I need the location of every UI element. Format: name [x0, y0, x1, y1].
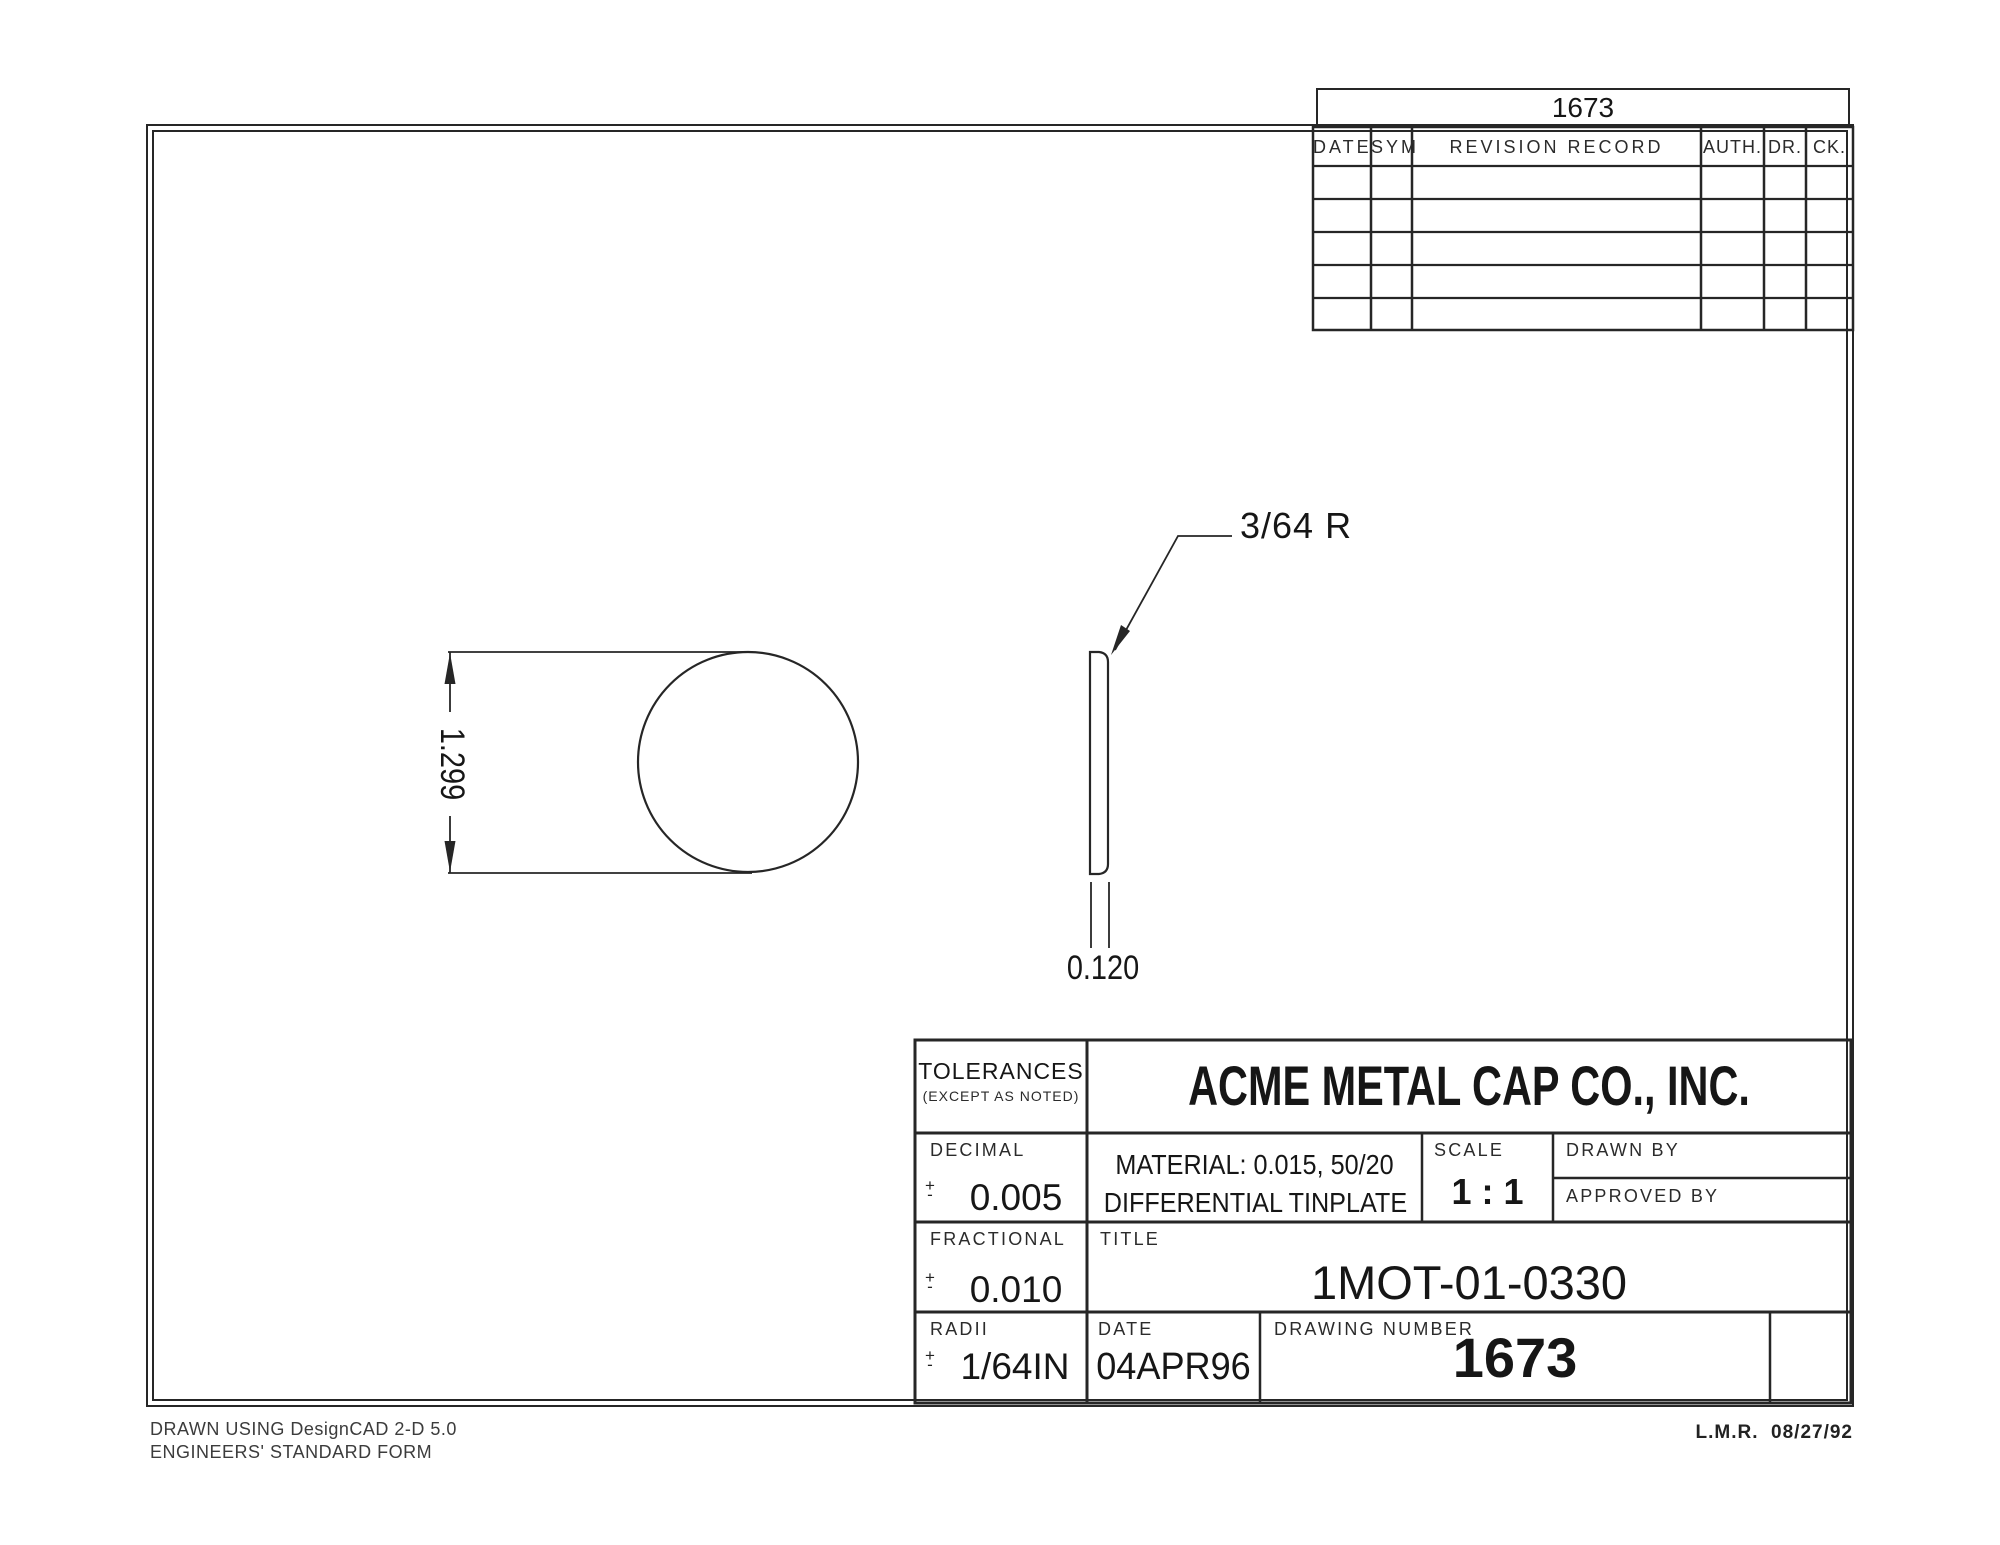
fractional-plus-minus: + - — [925, 1274, 935, 1291]
scale-value: 1 : 1 — [1422, 1174, 1553, 1210]
drawing-sheet: 1673 DATE SYM REVISION RECORD AUTH. DR. … — [0, 0, 2000, 1545]
revision-sheet-number: 1673 — [1317, 94, 1849, 122]
title-label: TITLE — [1100, 1230, 1160, 1248]
drawing-geometry — [0, 0, 2000, 1545]
pm-bottom: - — [927, 1191, 933, 1200]
approved-by-label: APPROVED BY — [1566, 1187, 1719, 1205]
revision-col-header-record: REVISION RECORD — [1412, 138, 1701, 156]
radii-plus-minus: + - — [925, 1352, 935, 1369]
radius-leader-arrow — [1111, 625, 1130, 655]
tolerances-note: (EXCEPT AS NOTED) — [915, 1089, 1087, 1103]
dim-arrow-down — [445, 841, 456, 872]
fractional-label: FRACTIONAL — [930, 1230, 1066, 1248]
radii-value: 1/64IN — [940, 1348, 1090, 1385]
dim-arrow-up — [445, 653, 456, 684]
radius-leader-line — [1115, 536, 1232, 650]
radius-callout-text: 3/64 R — [1240, 508, 1352, 544]
part-front-view-circle — [638, 652, 858, 872]
decimal-plus-minus: + - — [925, 1182, 935, 1199]
date-label: DATE — [1098, 1320, 1153, 1338]
date-value: 04APR96 — [1091, 1348, 1255, 1386]
revision-col-header-ck: CK. — [1806, 138, 1853, 156]
fractional-value: 0.010 — [945, 1271, 1087, 1308]
material-line1: MATERIAL: 0.015, 50/20 — [1104, 1151, 1406, 1179]
revision-col-header-dr: DR. — [1764, 138, 1806, 156]
drawing-number-value: 1673 — [1260, 1330, 1770, 1386]
material-line2: DIFFERENTIAL TINPLATE — [1104, 1189, 1406, 1217]
part-side-view-profile — [1090, 652, 1108, 874]
scale-label: SCALE — [1434, 1141, 1504, 1159]
decimal-label: DECIMAL — [930, 1141, 1025, 1159]
title-value: 1MOT-01-0330 — [1087, 1259, 1851, 1306]
revision-col-header-sym: SYM — [1371, 138, 1412, 156]
pm-bottom: - — [927, 1283, 933, 1292]
revision-table-frame — [1313, 127, 1853, 330]
footer-initials-date: L.M.R. 08/27/92 — [1553, 1423, 1853, 1442]
pm-bottom: - — [927, 1361, 933, 1370]
diameter-dimension-text: 1.299 — [435, 728, 469, 800]
company-name: ACME METAL CAP CO., INC. — [1186, 1058, 1751, 1114]
tolerances-label: TOLERANCES — [915, 1060, 1087, 1083]
footer-drawn-using-note: DRAWN USING DesignCAD 2-D 5.0 — [150, 1420, 457, 1438]
footer-standard-form-note: ENGINEERS' STANDARD FORM — [150, 1443, 432, 1461]
revision-col-header-date: DATE — [1313, 138, 1371, 156]
drawn-by-label: DRAWN BY — [1566, 1141, 1680, 1159]
thickness-dimension-text: 0.120 — [1052, 951, 1154, 985]
decimal-value: 0.005 — [945, 1179, 1087, 1216]
radii-label: RADII — [930, 1320, 989, 1338]
revision-col-header-auth: AUTH. — [1701, 138, 1764, 156]
